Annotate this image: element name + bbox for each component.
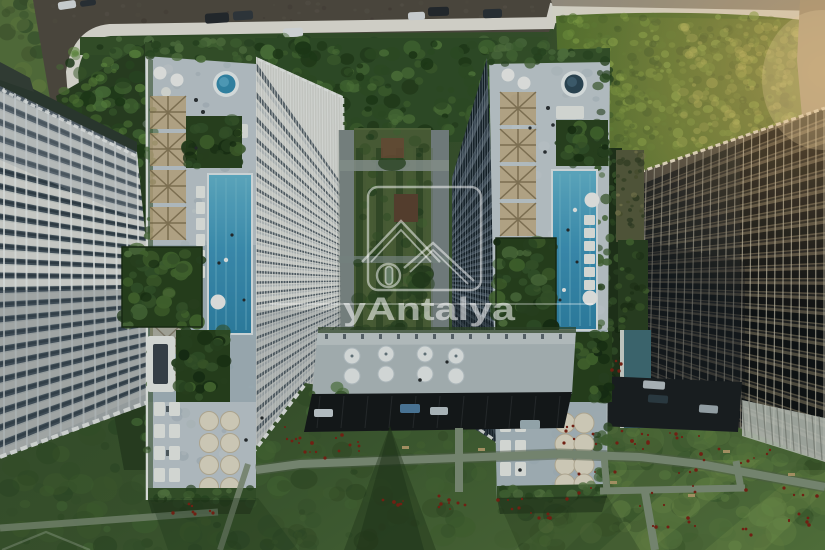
svg-text:yAntalya: yAntalya <box>343 290 515 327</box>
